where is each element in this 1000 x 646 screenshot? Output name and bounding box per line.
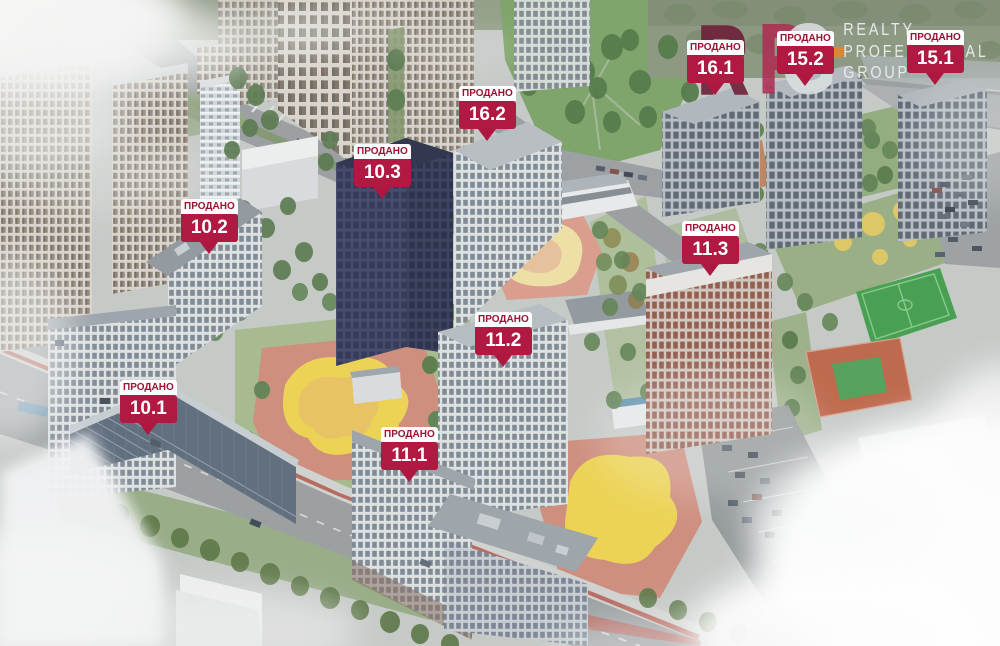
- svg-text:REALTY: REALTY: [843, 20, 915, 40]
- svg-text:GROUP: GROUP: [843, 63, 910, 83]
